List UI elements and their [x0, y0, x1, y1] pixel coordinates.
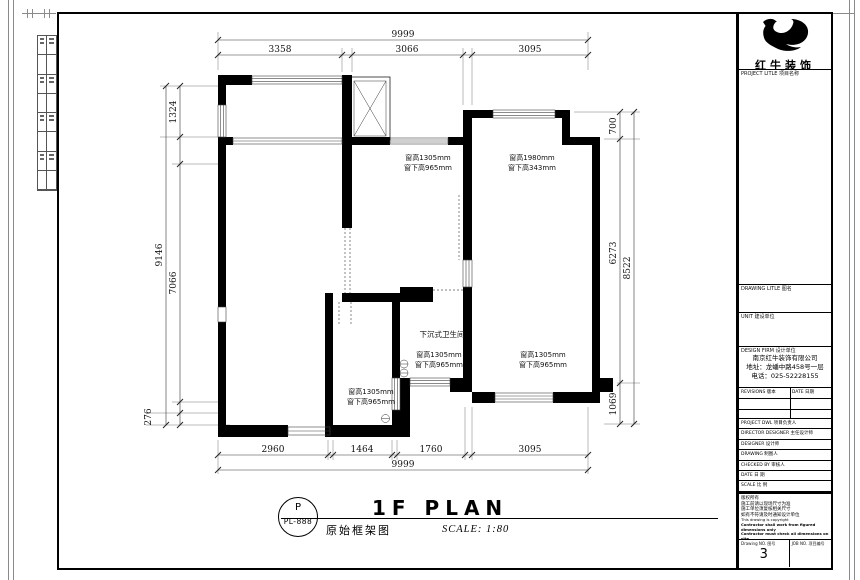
- revisions-divider: [790, 388, 791, 418]
- signature-cell: [47, 36, 56, 55]
- unit-label: UNIT 建设单位: [739, 313, 831, 320]
- redbull-logo-icon: [753, 16, 817, 52]
- registration-tick-3: [44, 9, 45, 18]
- dim-bottom-2: 1464: [351, 445, 374, 455]
- dim-left-2: 7066: [169, 271, 179, 294]
- dim-bottom-3: 1760: [420, 445, 443, 455]
- label-window-tl-line1: 窗高1305mm: [405, 153, 451, 162]
- personnel-row-drawing: DRAWING 制图人: [739, 450, 831, 460]
- dotted-openings: [339, 195, 463, 326]
- revision-empty-row: [739, 399, 831, 410]
- window-bottom-middle: [410, 378, 450, 386]
- signature-cell: [38, 171, 47, 190]
- opening-balcony-sill: [233, 138, 342, 144]
- design-firm-section: DESIGN FIRM 设计单位 南京红牛装饰有限公司 地址：龙蟠中路458号一…: [739, 347, 831, 388]
- signature-cell: [47, 171, 56, 190]
- label-window-tr-line1: 窗高1980mm: [509, 153, 555, 162]
- drawing-title-section: DRAWING LITLE 图名: [739, 285, 831, 313]
- label-window-mid-line1: 窗高1305mm: [416, 350, 462, 359]
- design-firm-label: DESIGN FIRM 设计单位: [739, 347, 831, 354]
- label-window-tr-line2: 窗下高343mm: [508, 163, 556, 172]
- personnel-row-director: DIRECTOR DESIGNER 主任设计师: [739, 429, 831, 439]
- logo-section: 红牛装饰: [739, 14, 831, 70]
- sheet-edge-line-right-inner: [854, 0, 855, 580]
- dim-right-3: 1069: [609, 392, 619, 415]
- personnel-section: PROJECT DWL 项目负责人 DIRECTOR DESIGNER 主任设计…: [739, 419, 831, 492]
- company-name: 南京红牛装饰有限公司: [739, 354, 831, 363]
- sheet-edge-line-left-outer: [8, 0, 9, 580]
- detail-callout-letter: P: [279, 498, 317, 517]
- personnel-row-scale: SCALE 比 例: [739, 481, 831, 491]
- personnel-row-date: DATE 日 期: [739, 471, 831, 481]
- sheet-edge-tick-top-right: [833, 13, 854, 14]
- label-window-br-line1: 窗高1305mm: [520, 350, 566, 359]
- personnel-row-project: PROJECT DWL 项目负责人: [739, 419, 831, 429]
- window-balcony-left: [218, 105, 226, 137]
- sheet-edge-line-right-outer: [849, 0, 850, 580]
- signature-strip: [37, 35, 57, 191]
- revisions-label: REVISIONS 版本: [739, 388, 789, 398]
- note-line-en: Contractor must check all dimensions on …: [741, 532, 829, 540]
- signature-cell: [47, 152, 56, 171]
- signature-cell: [38, 94, 47, 113]
- floor-plan: 9999 3358 3066 3095 2960 1464 1760 3095 …: [140, 20, 660, 490]
- job-no-label: JOB NO. 项目编号: [790, 540, 831, 547]
- windows: [218, 76, 555, 435]
- dim-bottom-1: 2960: [262, 445, 285, 455]
- dim-top-1: 3358: [269, 45, 292, 55]
- plan-title: 1F PLAN: [372, 496, 508, 520]
- unit-section: UNIT 建设单位: [739, 313, 831, 347]
- opening-bottom-left: [288, 427, 330, 435]
- sheet-edge-line-left-inner: [13, 0, 14, 580]
- plan-subtitle: 原始框架图: [326, 522, 391, 538]
- window-bottom-right: [495, 393, 553, 402]
- signature-cell: [47, 94, 56, 113]
- signature-cell: [47, 55, 56, 74]
- detail-callout: P PL-888: [278, 497, 318, 537]
- niche-left-wall: [218, 307, 226, 322]
- label-sunken-bathroom: 下沉式卫生间: [420, 329, 465, 339]
- revisions-section: REVISIONS 版本 DATE 日期: [739, 388, 831, 419]
- notes-section: 版权所有 施工前请以现场尺寸为准 施工单位须复核相关尺寸 如有不符请及时通知设计…: [739, 492, 831, 540]
- dim-right-overall: 8522: [623, 257, 633, 280]
- label-window-mid-line2: 窗下高965mm: [415, 360, 463, 369]
- drawing-title-label: DRAWING LITLE 图名: [739, 285, 831, 292]
- drawing-no-label: Drawing NO. 图号: [739, 540, 789, 547]
- personnel-row-checked: CHECKED BY 审核人: [739, 461, 831, 471]
- registration-tick-4: [49, 9, 50, 18]
- dim-left-overall: 9146: [155, 243, 165, 266]
- label-window-bath-line1: 窗高1305mm: [348, 387, 394, 396]
- drawing-sheet: 9999 3358 3066 3095 2960 1464 1760 3095 …: [0, 0, 860, 580]
- window-right-wall-band: [463, 260, 472, 287]
- revisions-date-label: DATE 日期: [789, 388, 831, 398]
- signature-cell: [38, 75, 47, 94]
- plan-scale: SCALE: 1:80: [442, 524, 509, 535]
- label-window-tl-line2: 窗下高965mm: [404, 163, 452, 172]
- drawing-number-section: Drawing NO. 图号 3 JOB NO. 项目编号: [739, 540, 831, 567]
- personnel-row-designer: DESIGNER 设计师: [739, 440, 831, 450]
- signature-cell: [38, 132, 47, 151]
- registration-tick-1: [27, 9, 28, 18]
- signature-cell: [38, 55, 47, 74]
- signature-cell: [38, 36, 47, 55]
- window-bedroom2-top: [390, 138, 448, 144]
- dim-left-3: 276: [144, 408, 154, 425]
- company-logo-name: 红牛装饰: [739, 57, 831, 70]
- revision-empty-row: [739, 410, 831, 419]
- company-phone: 电话：025-52228155: [739, 372, 831, 381]
- registration-tick-2: [32, 9, 33, 18]
- company-address: 地址：龙蟠中路458号一层: [739, 363, 831, 372]
- dim-top-overall: 9999: [392, 30, 415, 40]
- window-balcony-top: [252, 76, 342, 84]
- dim-left-1: 1324: [169, 100, 179, 123]
- walls: [218, 75, 613, 437]
- dim-right-2: 6273: [609, 241, 619, 264]
- dim-bottom-overall: 9999: [392, 460, 415, 470]
- signature-cell: [38, 152, 47, 171]
- dim-top-3: 3095: [519, 45, 542, 55]
- detail-callout-number: PL-888: [279, 517, 317, 526]
- project-title-section: PROJECT LITLE 项目名称: [739, 70, 831, 285]
- signature-cell: [47, 113, 56, 132]
- shaft-box: [350, 77, 390, 140]
- dim-bottom-4: 3095: [519, 445, 542, 455]
- drawing-no-value: 3: [739, 547, 789, 562]
- signature-cell: [47, 75, 56, 94]
- project-title-label: PROJECT LITLE 项目名称: [739, 70, 831, 77]
- signature-cell: [47, 132, 56, 151]
- label-window-br-line2: 窗下高965mm: [519, 360, 567, 369]
- signature-cell: [38, 113, 47, 132]
- title-block: 红牛装饰 PROJECT LITLE 项目名称 DRAWING LITLE 图名…: [736, 14, 831, 568]
- dim-top-2: 3066: [396, 45, 419, 55]
- dim-right-1: 700: [609, 117, 619, 134]
- label-window-bath-line2: 窗下高965mm: [347, 397, 395, 406]
- window-bedroom1-top: [493, 110, 555, 118]
